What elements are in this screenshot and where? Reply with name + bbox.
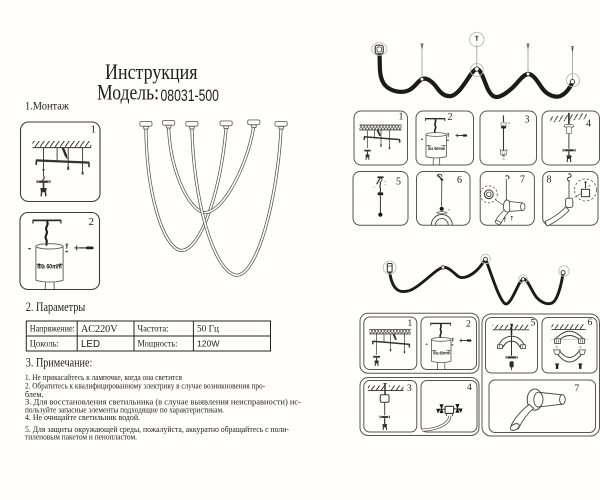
svg-text:4. Не очищайте светильник вод: 4. Не очищайте светильник водой.: [25, 412, 140, 422]
svg-text:2. Параметры: 2. Параметры: [26, 300, 86, 314]
svg-text:3: 3: [525, 115, 530, 126]
svg-text:2. Обратитесь к квалифицирован: 2. Обратитесь к квалифицированному элект…: [25, 381, 265, 391]
svg-text:2: 2: [466, 320, 471, 330]
svg-text:5: 5: [396, 177, 401, 188]
svg-text:1.Монтаж: 1.Монтаж: [25, 99, 70, 113]
svg-text:Мощность:: Мощность:: [138, 339, 178, 349]
svg-text:7: 7: [520, 175, 525, 186]
svg-text:1: 1: [408, 319, 413, 329]
svg-text:7: 7: [575, 384, 580, 394]
svg-text:Частота:: Частота:: [138, 324, 169, 334]
svg-text:Цоколь:: Цоколь:: [30, 339, 59, 349]
svg-text:1: 1: [399, 112, 404, 123]
svg-text:dia 60mm: dia 60mm: [428, 146, 445, 152]
svg-text:3. Примечание:: 3. Примечание:: [26, 356, 93, 370]
svg-text:dia 60mm: dia 60mm: [433, 351, 450, 357]
svg-text:Модель:: Модель:: [97, 80, 159, 105]
svg-text:5: 5: [531, 319, 536, 329]
svg-text:4: 4: [586, 119, 591, 130]
svg-text:dia 60mm: dia 60mm: [37, 264, 62, 271]
svg-text:2: 2: [89, 216, 95, 228]
svg-text:8: 8: [547, 175, 552, 186]
svg-text:Напряжение:: Напряжение:: [30, 324, 75, 334]
svg-text:тиленовым пакетом и пенопласто: тиленовым пакетом и пенопластом.: [25, 432, 137, 442]
svg-text:6: 6: [588, 318, 593, 328]
svg-text:08031-500: 08031-500: [161, 87, 220, 105]
svg-text:AC220V: AC220V: [81, 324, 118, 335]
svg-text:1: 1: [91, 124, 97, 136]
svg-text:120W: 120W: [197, 338, 220, 348]
svg-text:3: 3: [407, 384, 412, 394]
svg-text:50 Гц: 50 Гц: [197, 324, 219, 334]
svg-text:4: 4: [467, 383, 472, 393]
svg-text:2: 2: [448, 112, 453, 123]
svg-text:6: 6: [457, 175, 462, 186]
svg-text:LED: LED: [81, 338, 100, 350]
